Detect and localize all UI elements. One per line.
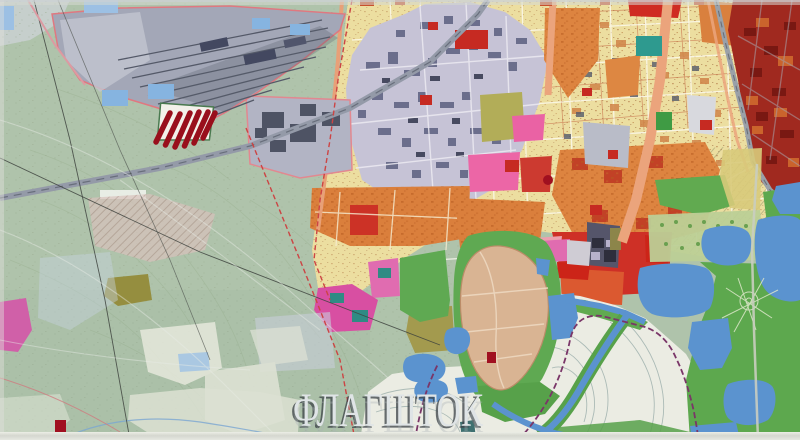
svg-text:ФЛАГШТОК: ФЛАГШТОК xyxy=(293,384,484,437)
